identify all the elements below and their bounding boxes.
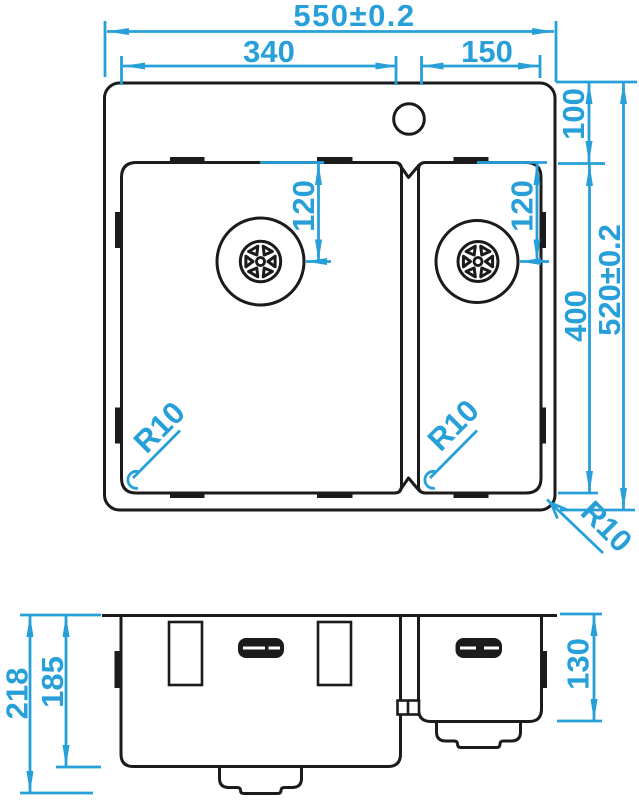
- svg-text:130: 130: [561, 638, 596, 690]
- svg-text:218: 218: [0, 668, 35, 720]
- svg-text:R10: R10: [574, 494, 639, 559]
- svg-text:550±0.2: 550±0.2: [293, 0, 415, 33]
- svg-text:520±0.2: 520±0.2: [592, 224, 627, 336]
- svg-text:120: 120: [286, 180, 321, 232]
- svg-text:100: 100: [556, 88, 591, 140]
- svg-text:400: 400: [558, 290, 593, 342]
- svg-text:150: 150: [461, 34, 513, 69]
- svg-text:120: 120: [505, 180, 540, 232]
- svg-text:185: 185: [35, 656, 70, 708]
- svg-text:340: 340: [243, 34, 295, 69]
